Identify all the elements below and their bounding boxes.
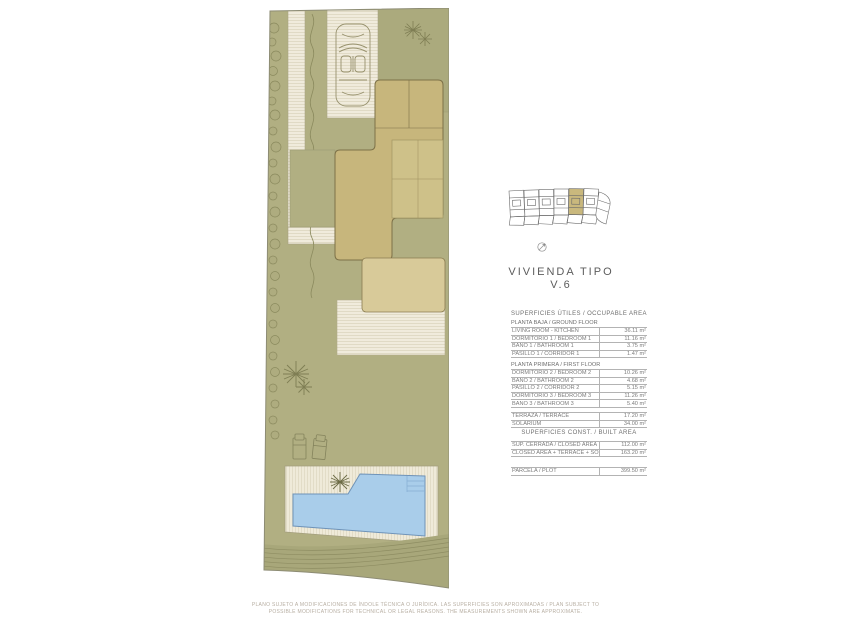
useful-area-header: SUPERFICIES ÚTILES / OCCUPABLE AREA (511, 311, 647, 317)
area-row-label: PASILLO 1 / CORRIDOR 1 (511, 351, 599, 357)
walkway-lower (288, 227, 340, 244)
sun-lounger-icon (293, 434, 306, 459)
title-line2: V.6 (500, 279, 622, 292)
disclaimer-line2: POSSIBLE MODIFICATIONS FOR TECHNICAL OR … (0, 609, 851, 616)
area-row-value: 11.26 m² (599, 393, 647, 400)
area-row: TERRAZA / TERRACE17.20 m² (511, 413, 647, 421)
area-row: PASILLO 1 / CORRIDOR 11.47 m² (511, 351, 647, 359)
area-row: DORMITORIO 1 / BEDROOM 111.16 m² (511, 336, 647, 344)
key-plan-unit (581, 189, 598, 225)
area-row-value: 17.20 m² (599, 413, 647, 420)
area-row: BAÑO 1 / BATHROOM 13.75 m² (511, 343, 647, 351)
area-row-label: LIVING ROOM - KITCHEN (511, 328, 599, 334)
area-row: BAÑO 2 / BATHROOM 24.68 m² (511, 378, 647, 386)
area-row-label: DORMITORIO 1 / BEDROOM 1 (511, 336, 599, 342)
area-row-label: CLOSED AREA + TERRACE + SOLARIUM (511, 450, 599, 456)
area-row-label: SUP. CERRADA / CLOSED AREA (511, 442, 599, 448)
area-row-value: 4.68 m² (599, 378, 647, 385)
first-floor-label: PLANTA PRIMERA / FIRST FLOOR (511, 362, 600, 368)
key-plan-unit (553, 189, 569, 224)
outdoor-area-table: TERRAZA / TERRACE17.20 m² SOLARIUM34.00 … (511, 412, 647, 428)
plant-icon (330, 472, 350, 492)
area-row-label: PASILLO 2 / CORRIDOR 2 (511, 385, 599, 391)
site-plan (262, 8, 449, 600)
key-plan (506, 184, 616, 258)
area-row-value: 1.47 m² (599, 351, 647, 358)
area-row: PARCELA / PLOT399.50 m² (511, 468, 647, 476)
area-row-value: 5.15 m² (599, 385, 647, 392)
courtyard (290, 150, 335, 227)
area-row-value: 10.26 m² (599, 370, 647, 377)
plan-sheet: VIVIENDA TIPO V.6 SUPERFICIES ÚTILES / O… (0, 0, 851, 625)
compass-icon (538, 243, 546, 251)
area-row-value: 112.00 m² (599, 442, 647, 449)
area-row: CLOSED AREA + TERRACE + SOLARIUM163.20 m… (511, 450, 647, 458)
area-row-label: DORMITORIO 2 / BEDROOM 2 (511, 370, 599, 376)
area-row-label: BAÑO 3 / BATHROOM 3 (511, 401, 599, 407)
key-plan-unit (538, 189, 555, 224)
area-row-value: 399.50 m² (599, 468, 647, 475)
title-line1: VIVIENDA TIPO (500, 266, 622, 279)
sun-lounger-icon (312, 434, 327, 459)
area-row: SOLARIUM34.00 m² (511, 421, 647, 429)
built-area-header: SUPERFICIES CONST. / BUILT AREA (511, 430, 647, 436)
area-row: SUP. CERRADA / CLOSED AREA112.00 m² (511, 442, 647, 450)
first-floor-table: DORMITORIO 2 / BEDROOM 210.26 m² BAÑO 2 … (511, 369, 647, 408)
area-row: PASILLO 2 / CORRIDOR 25.15 m² (511, 385, 647, 393)
area-row-label: PARCELA / PLOT (511, 468, 599, 474)
page-title: VIVIENDA TIPO V.6 (500, 266, 622, 292)
area-row-label: DORMITORIO 3 / BEDROOM 3 (511, 393, 599, 399)
area-row-label: BAÑO 1 / BATHROOM 1 (511, 343, 599, 349)
key-plan-unit (523, 190, 540, 226)
area-row: BAÑO 3 / BATHROOM 35.40 m² (511, 400, 647, 408)
disclaimer: PLANO SUJETO A MODIFICACIONES DE ÍNDOLE … (0, 602, 851, 615)
area-row-label: BAÑO 2 / BATHROOM 2 (511, 378, 599, 384)
built-area-table: SUP. CERRADA / CLOSED AREA112.00 m² CLOS… (511, 441, 647, 457)
ground-floor-table: LIVING ROOM - KITCHEN36.11 m² DORMITORIO… (511, 327, 647, 358)
key-plan-unit (508, 190, 526, 226)
area-row-value: 3.75 m² (599, 343, 647, 350)
area-row: DORMITORIO 3 / BEDROOM 311.26 m² (511, 393, 647, 401)
ground-floor-label: PLANTA BAJA / GROUND FLOOR (511, 320, 598, 326)
area-row-label: TERRAZA / TERRACE (511, 413, 599, 419)
area-row-value: 36.11 m² (599, 328, 647, 335)
key-plan-unit-highlighted (567, 189, 584, 224)
area-row: LIVING ROOM - KITCHEN36.11 m² (511, 328, 647, 336)
area-row-value: 163.20 m² (599, 450, 647, 457)
area-row-value: 11.16 m² (599, 336, 647, 343)
area-row-value: 5.40 m² (599, 400, 647, 407)
terrace-slab (362, 258, 445, 312)
area-row-value: 34.00 m² (599, 421, 647, 428)
area-row: DORMITORIO 2 / BEDROOM 210.26 m² (511, 370, 647, 378)
plot-area-table: PARCELA / PLOT399.50 m² (511, 467, 647, 476)
area-row-label: SOLARIUM (511, 421, 599, 427)
